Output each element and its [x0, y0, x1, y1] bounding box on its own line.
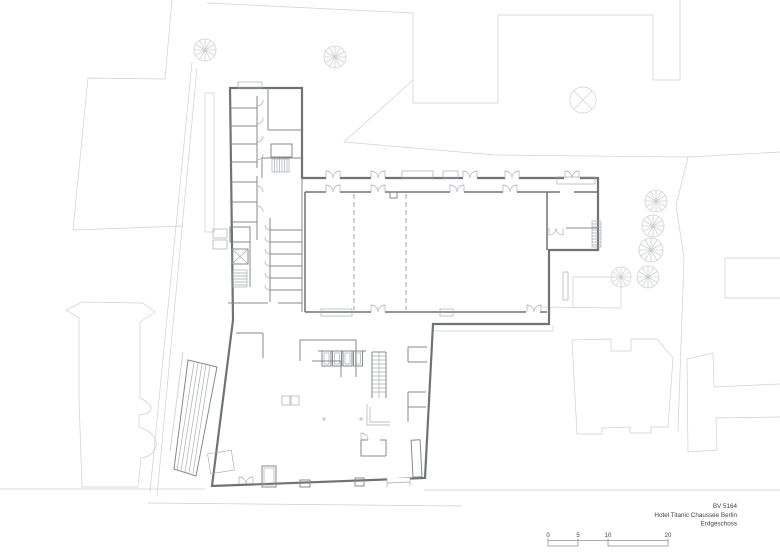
north-wing [230, 82, 302, 240]
tree-symbol [642, 215, 664, 237]
south-room [361, 440, 386, 456]
tree-symbol [324, 46, 346, 68]
street-lines-bottom [0, 489, 780, 506]
back-office-walls [236, 333, 263, 358]
neighbor-parcel-west [66, 302, 156, 487]
east-exterior-stair [592, 221, 601, 247]
door-symbols [239, 171, 579, 484]
column [360, 418, 362, 420]
bar-counters [282, 396, 299, 405]
neighbor-building-southeast [687, 353, 780, 452]
door-threshold [355, 478, 364, 486]
title-block: BV 5164 Hotel Titanic Chaussee Berlin Er… [654, 503, 737, 528]
access-ramp [170, 352, 234, 476]
planter [563, 272, 568, 300]
lobby-elevator-bank [318, 351, 366, 366]
street-curb-lines [150, 62, 197, 496]
double-door [549, 228, 563, 235]
scale-label-20: 20 [665, 533, 672, 539]
restaurant-walls [300, 340, 356, 377]
entry-steps [208, 450, 235, 474]
tree-symbol [645, 190, 667, 212]
reception-desk [367, 404, 390, 425]
lobby [236, 333, 427, 487]
boundary-north-east [344, 80, 780, 432]
crossed-tree-marker [570, 87, 596, 113]
conference-hall [305, 192, 601, 312]
scale-label-0: 0 [546, 533, 550, 539]
scale-label-10: 10 [605, 533, 612, 539]
west-balcony [213, 240, 227, 249]
level-label: Erdgeschoss [701, 521, 737, 528]
insulated-wall [411, 440, 422, 477]
scale-bar: 0 5 10 20 [546, 533, 672, 546]
floor-plan-canvas: BV 5164 Hotel Titanic Chaussee Berlin Er… [0, 0, 780, 552]
door-swing-arc [361, 433, 368, 440]
sidewalk-strip [205, 93, 214, 232]
tree-symbol [611, 267, 631, 287]
tree-symbol [639, 238, 663, 262]
wing-elevator [271, 144, 292, 157]
project-name-label: Hotel Titanic Chaussee Berlin [654, 512, 737, 519]
west-balcony [213, 229, 227, 238]
wing-stair [272, 159, 289, 172]
partition-pocket [390, 192, 397, 198]
scale-bar-line [548, 539, 668, 547]
tree-symbol [637, 266, 659, 288]
boundary-top-left [73, 0, 183, 230]
core-shaft [232, 249, 248, 264]
neighbor-building-south-center [572, 339, 673, 434]
scale-label-5: 5 [576, 533, 580, 539]
main-stair [372, 352, 386, 398]
door-swing-arcs [257, 100, 263, 212]
main-building [170, 82, 601, 487]
neighbor-building-east [725, 258, 780, 298]
project-id-label: BV 5164 [713, 503, 738, 510]
mid-room-column [228, 178, 302, 312]
east-rooms [408, 347, 427, 422]
column [323, 418, 325, 420]
floor-plan-sheet: BV 5164 Hotel Titanic Chaussee Berlin Er… [0, 0, 780, 552]
core-stair [233, 270, 247, 287]
tree-symbol [194, 39, 216, 61]
door-swing-arcs [265, 225, 270, 290]
